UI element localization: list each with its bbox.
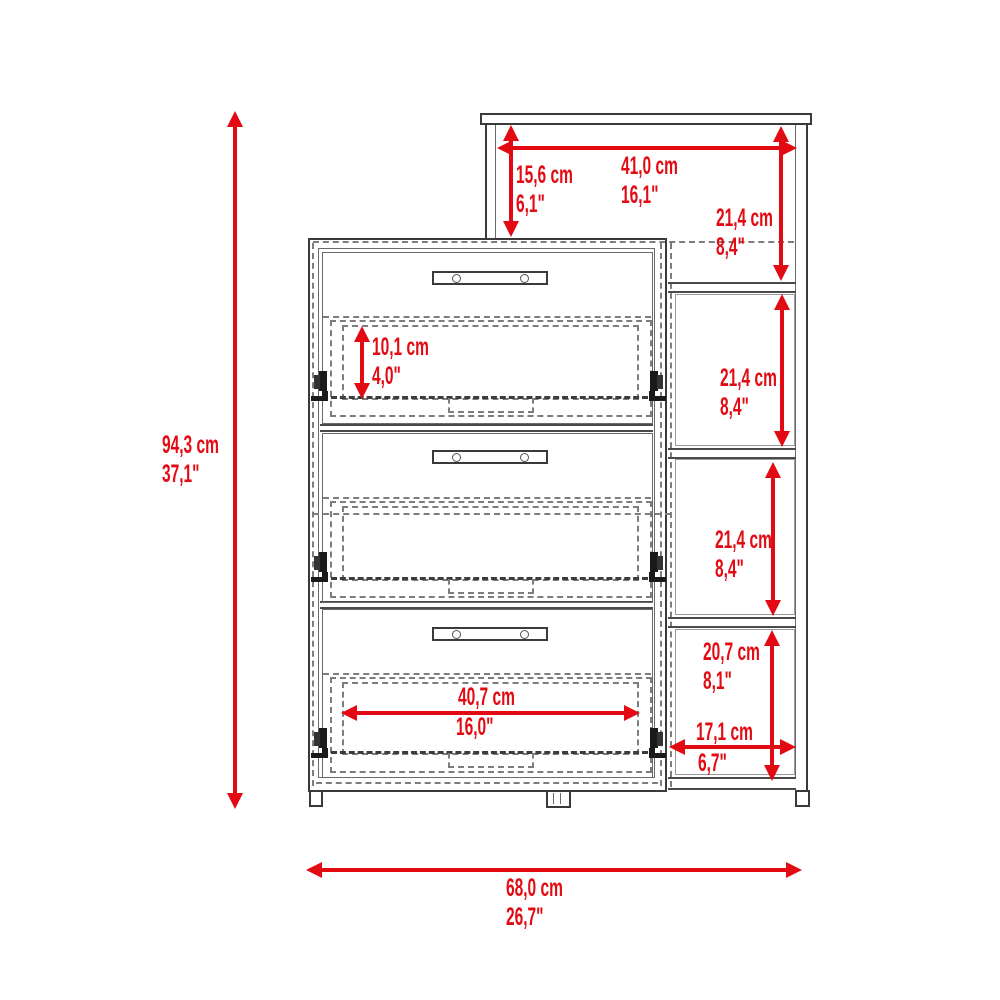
- arrow-down-icon: [227, 793, 243, 809]
- tray-top-dash: [323, 316, 651, 318]
- cabinet-foot-left: [309, 790, 323, 807]
- dim-label-cm: 40,7 cm: [458, 683, 515, 712]
- foot-detail: [560, 793, 561, 804]
- cabinet-bottom-edge-dash: [316, 782, 658, 784]
- dim-label: 21,4 cm 8,4": [715, 526, 772, 584]
- dim-line: [320, 868, 788, 872]
- dim-label: 10,1 cm 4,0": [372, 333, 429, 391]
- dim-label: 15,6 cm 6,1": [516, 161, 573, 219]
- screw-icon: [452, 453, 461, 462]
- dim-label: 20,7 cm 8,1": [703, 638, 760, 696]
- tower-shelf-2: [668, 448, 796, 459]
- tray-tab: [448, 753, 534, 768]
- arrow-right-icon: [624, 705, 640, 721]
- dim-label-in: 4,0": [372, 362, 429, 391]
- arrow-down-icon: [764, 765, 780, 781]
- dim-label-cm: 10,1 cm: [372, 333, 429, 362]
- screw-icon: [520, 274, 529, 283]
- dim-label-in: 6,1": [516, 190, 573, 219]
- dim-label-cm: 68,0 cm: [506, 874, 563, 903]
- arrow-down-icon: [503, 221, 519, 237]
- hidden-tower-left-edge: [670, 243, 672, 787]
- furniture-dimension-diagram: 94,3 cm 37,1" 68,0 cm 26,7" 15,6 cm 6,1"…: [0, 0, 1000, 1000]
- hinge-icon: [647, 551, 667, 585]
- tower-top-board: [480, 113, 812, 125]
- dim-label-in: 37,1": [162, 460, 219, 489]
- hinge-icon: [647, 727, 667, 761]
- dim-label-cm: 41,0 cm: [621, 152, 678, 181]
- dim-line: [233, 125, 237, 795]
- door-handle: [432, 271, 548, 285]
- dim-label-in: 8,4": [715, 555, 772, 584]
- tower-right-wall-outer: [806, 125, 808, 790]
- dim-label-in: 8,4": [720, 393, 777, 422]
- screw-icon: [520, 453, 529, 462]
- tray-top-dash: [323, 673, 651, 675]
- screw-icon: [520, 630, 529, 639]
- hinge-icon: [310, 370, 330, 404]
- tray-outline-inner: [342, 506, 639, 581]
- tray-tab: [448, 398, 534, 413]
- tower-left-wall-inner: [495, 125, 496, 240]
- dim-label-in: 8,4": [716, 233, 773, 262]
- arrow-right-icon: [781, 140, 797, 156]
- dim-label: 94,3 cm 37,1": [162, 431, 219, 489]
- arrow-down-icon: [354, 383, 370, 399]
- door-handle: [432, 627, 548, 641]
- tower-shelf-1: [668, 282, 796, 293]
- dim-label-cm: 94,3 cm: [162, 431, 219, 460]
- dim-label: 21,4 cm 8,4": [720, 364, 777, 422]
- dim-label-in: 6,7": [698, 749, 727, 778]
- dim-label: 41,0 cm 16,1": [621, 152, 678, 210]
- dim-label-in: 26,7": [506, 903, 544, 932]
- arrow-down-icon: [765, 600, 781, 616]
- arrow-right-icon: [786, 862, 802, 878]
- arrow-down-icon: [774, 431, 790, 447]
- dim-label-cm: 17,1 cm: [696, 718, 753, 747]
- dim-label-in: 16,0": [456, 713, 494, 742]
- dim-line: [780, 308, 784, 433]
- hinge-icon: [647, 370, 667, 404]
- dim-label-in: 16,1": [621, 181, 678, 210]
- dim-line: [511, 146, 783, 150]
- arrow-down-icon: [773, 265, 789, 281]
- hinge-icon: [310, 551, 330, 585]
- dim-label-cm: 21,4 cm: [720, 364, 777, 393]
- dim-label-in: 8,1": [703, 667, 760, 696]
- tower-left-wall-outer: [485, 125, 487, 240]
- tray-tab: [448, 579, 534, 594]
- arrow-right-icon: [780, 739, 796, 755]
- cabinet-foot-center: [546, 790, 571, 808]
- dim-label-cm: 21,4 cm: [716, 204, 773, 233]
- dim-line: [360, 340, 364, 385]
- screw-icon: [452, 274, 461, 283]
- dim-label-cm: 15,6 cm: [516, 161, 573, 190]
- dim-line: [779, 140, 783, 267]
- tray-top-dash: [323, 497, 651, 499]
- door-handle: [432, 450, 548, 464]
- dim-label-cm: 20,7 cm: [703, 638, 760, 667]
- foot-detail: [553, 793, 554, 804]
- screw-icon: [452, 630, 461, 639]
- section-separator-1: [320, 424, 653, 432]
- dim-label: 21,4 cm 8,4": [716, 204, 773, 262]
- dim-label-cm: 21,4 cm: [715, 526, 772, 555]
- tower-shelf-3: [668, 617, 796, 628]
- hinge-icon: [310, 727, 330, 761]
- tower-foot: [795, 790, 810, 807]
